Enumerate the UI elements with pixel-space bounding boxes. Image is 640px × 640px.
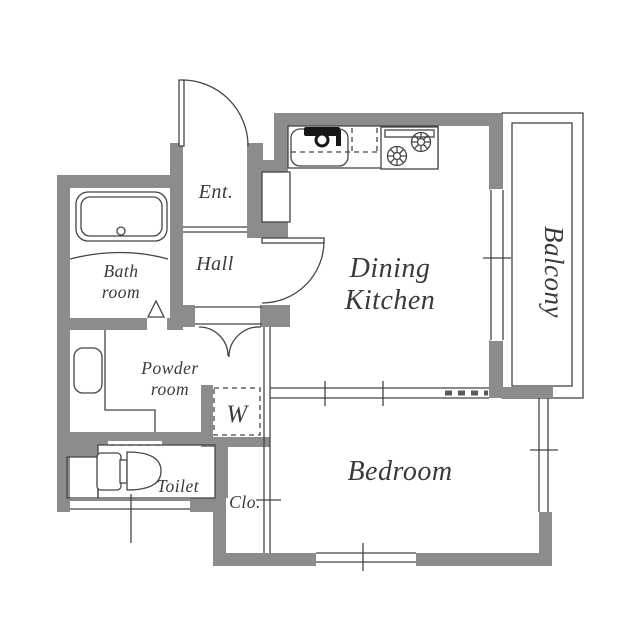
toilet-label: Toilet: [157, 476, 200, 496]
window-opening-cover: [490, 189, 503, 341]
bathroom-label-line1: Bath: [103, 261, 138, 281]
hall-door-leaf: [262, 238, 324, 243]
bedroom-label: Bedroom: [347, 456, 452, 487]
powder-folding-door-arcs: [199, 327, 261, 357]
vanity-sink-icon: [74, 330, 155, 432]
closet-label: Clo.: [229, 492, 261, 512]
bath-door-mark: [148, 301, 164, 317]
laundry-space-label: W: [226, 401, 249, 428]
bathtub-curb: [70, 253, 168, 260]
burner-2-cap: [418, 139, 425, 146]
floorplan-svg: Ent. Hall Bath room Powder room W Toilet…: [0, 0, 640, 640]
powder-room-label-line2: room: [151, 379, 189, 399]
hall-door-arc: [262, 241, 324, 303]
bathroom-label-line2: room: [102, 282, 140, 302]
burner-1-cap: [394, 153, 401, 160]
floorplan-page: Ent. Hall Bath room Powder room W Toilet…: [0, 0, 640, 640]
powder-room-label-line1: Powder: [140, 358, 198, 378]
toilet-hinge: [120, 460, 127, 483]
kitchen-counter: [288, 126, 438, 169]
entrance-door-leaf: [179, 80, 184, 146]
kitchen-sink-icon: [291, 127, 348, 166]
toilet-niche-outline: [67, 457, 98, 498]
gas-stove-icon: [381, 127, 438, 169]
balcony-label: Balcony: [539, 226, 569, 318]
shoe-cabinet-box: [262, 172, 290, 222]
windows-and-partition-lines: [70, 190, 558, 571]
toilet-tank: [97, 453, 121, 490]
dining-kitchen-label-line1: Dining: [349, 253, 431, 284]
vanity-counter: [105, 330, 155, 432]
hall-label: Hall: [195, 253, 234, 275]
shoe-cabinet: [262, 172, 290, 222]
entrance-door-arc: [182, 80, 248, 146]
entrance-label: Ent.: [198, 181, 234, 203]
vanity-basin: [74, 348, 102, 393]
faucet-spout: [336, 130, 341, 146]
bathtub-icon: [70, 192, 168, 259]
bathtub-drain: [117, 227, 125, 235]
dining-kitchen-label-line2: Kitchen: [344, 285, 436, 316]
faucet-knob: [316, 134, 328, 146]
